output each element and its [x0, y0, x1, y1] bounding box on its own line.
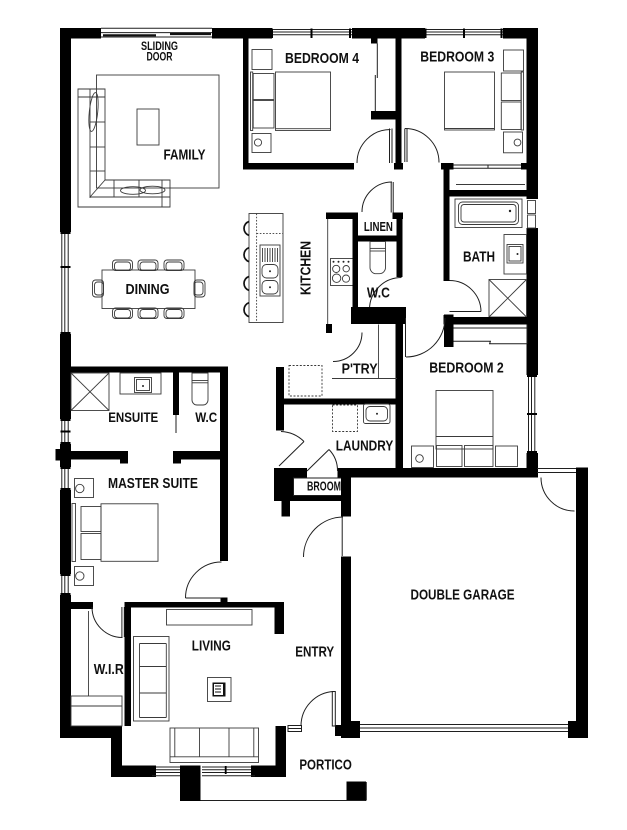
svg-text:DINING: DINING: [126, 281, 170, 298]
svg-text:BATH: BATH: [463, 248, 495, 265]
svg-text:ENTRY: ENTRY: [295, 643, 334, 660]
svg-text:BEDROOM 4: BEDROOM 4: [285, 50, 360, 67]
svg-text:BEDROOM 3: BEDROOM 3: [420, 48, 494, 65]
svg-text:LINEN: LINEN: [364, 220, 393, 234]
svg-text:W.I.R: W.I.R: [94, 661, 124, 678]
svg-text:MASTER SUITE: MASTER SUITE: [108, 475, 198, 492]
svg-text:BROOM: BROOM: [307, 479, 341, 493]
svg-text:KITCHEN: KITCHEN: [298, 241, 315, 295]
svg-text:DOOR: DOOR: [147, 52, 174, 64]
svg-text:LIVING: LIVING: [192, 637, 231, 654]
svg-text:PORTICO: PORTICO: [299, 756, 352, 773]
svg-text:W.C: W.C: [195, 409, 217, 425]
svg-text:FAMILY: FAMILY: [164, 146, 206, 163]
svg-text:DOUBLE GARAGE: DOUBLE GARAGE: [411, 586, 515, 603]
svg-text:LAUNDRY: LAUNDRY: [336, 438, 394, 455]
svg-text:BEDROOM 2: BEDROOM 2: [429, 360, 504, 377]
svg-text:ENSUITE: ENSUITE: [108, 409, 158, 425]
svg-text:W.C: W.C: [367, 284, 390, 301]
svg-text:P'TRY: P'TRY: [342, 360, 378, 377]
